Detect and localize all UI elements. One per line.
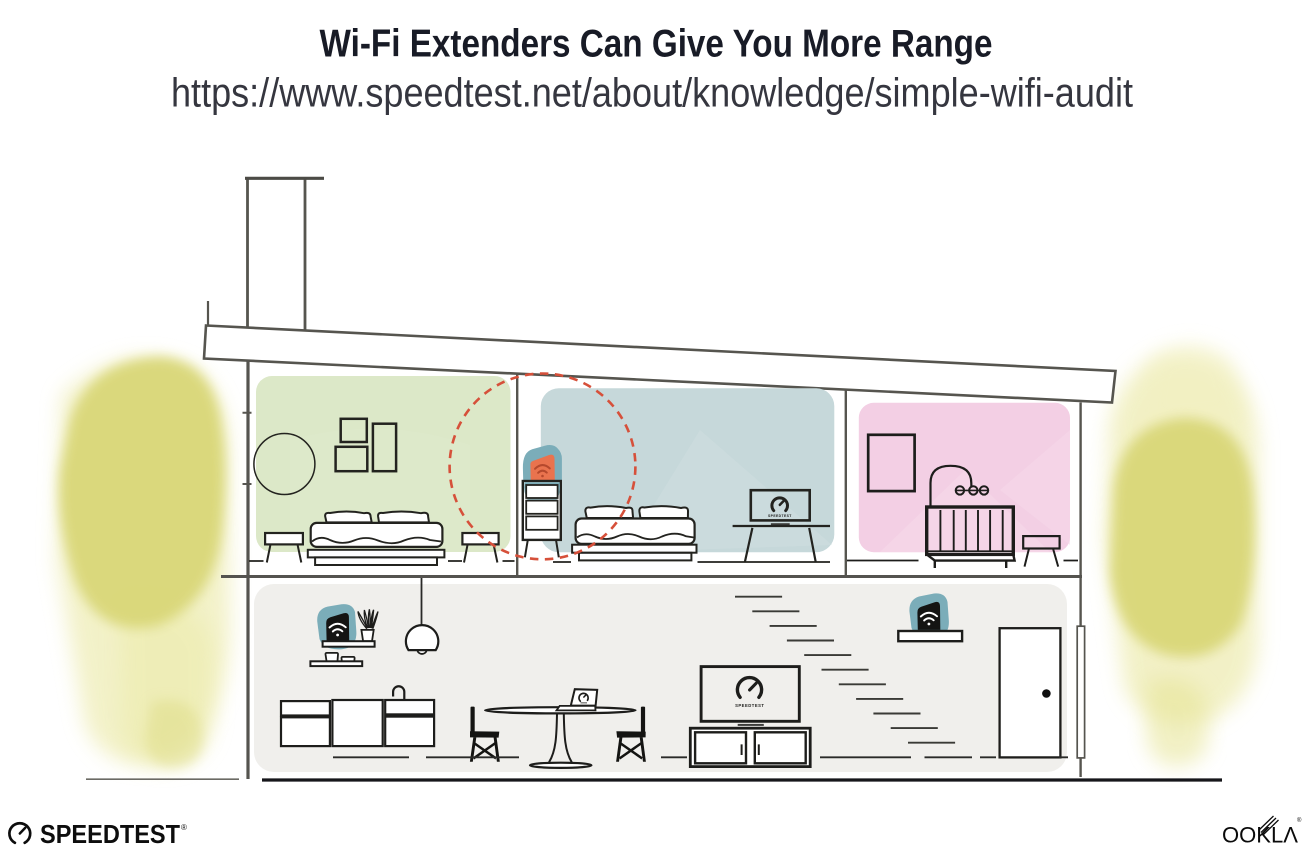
svg-text:Wi-Fi Extenders Can Give You M: Wi-Fi Extenders Can Give You More Range [320, 23, 993, 66]
svg-text:SPEEDTEST: SPEEDTEST [40, 821, 180, 849]
svg-text:OOKLΛ: OOKLΛ [1222, 823, 1298, 848]
svg-text:https://www.speedtest.net/abou: https://www.speedtest.net/about/knowledg… [171, 70, 1134, 116]
svg-text:SPEEDTEST: SPEEDTEST [768, 514, 792, 518]
svg-text:SPEEDTEST: SPEEDTEST [735, 703, 764, 708]
svg-text:®: ® [181, 823, 187, 832]
svg-text:®: ® [1297, 817, 1302, 824]
